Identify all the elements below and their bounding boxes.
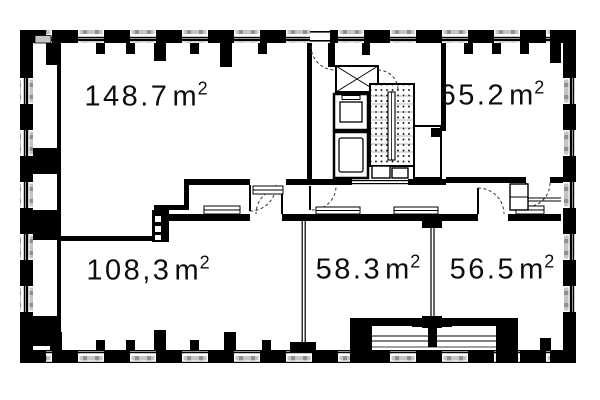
area-unit-exponent: 2 bbox=[534, 78, 544, 98]
area-label-top-left: 148.7m2 bbox=[84, 83, 207, 112]
door-swing bbox=[478, 188, 504, 214]
area-unit: m bbox=[519, 254, 543, 286]
area-unit: m bbox=[174, 255, 198, 287]
left-service-strip bbox=[33, 36, 61, 349]
area-value: 58.3 bbox=[316, 254, 382, 286]
area-unit-exponent: 2 bbox=[544, 252, 554, 272]
service-shaft bbox=[414, 126, 441, 178]
area-label-bottom-center: 58.3m2 bbox=[316, 256, 421, 285]
door-swing bbox=[312, 186, 336, 210]
storage-room bbox=[372, 166, 390, 178]
corridor-fixtures bbox=[204, 186, 544, 214]
area-unit: m bbox=[385, 254, 409, 286]
duct-shaft bbox=[35, 36, 51, 44]
elevator-shaft bbox=[334, 132, 368, 178]
floor-plan-drawing bbox=[0, 0, 600, 400]
area-value: 108,3 bbox=[86, 255, 171, 287]
area-label-bottom-right: 56.5m2 bbox=[450, 256, 555, 285]
area-unit-exponent: 2 bbox=[200, 253, 210, 273]
area-value: 56.5 bbox=[450, 254, 516, 286]
stairs bbox=[370, 84, 414, 166]
interior-walls bbox=[59, 43, 563, 242]
floor-plan: 148.7m2 65.2m2 108,3m2 58.3m2 56.5m2 bbox=[0, 0, 600, 400]
door-swing bbox=[526, 183, 550, 207]
shaft-compartments bbox=[155, 216, 161, 240]
storage-room bbox=[392, 168, 408, 178]
area-label-bottom-left: 108,3m2 bbox=[86, 257, 209, 286]
area-label-top-right: 65.2m2 bbox=[440, 82, 545, 111]
area-value: 148.7 bbox=[84, 81, 169, 113]
area-unit: m bbox=[172, 81, 196, 113]
area-unit: m bbox=[509, 80, 533, 112]
area-value: 65.2 bbox=[440, 80, 506, 112]
area-unit-exponent: 2 bbox=[410, 252, 420, 272]
area-unit-exponent: 2 bbox=[198, 79, 208, 99]
elevator-shaft bbox=[334, 94, 368, 130]
